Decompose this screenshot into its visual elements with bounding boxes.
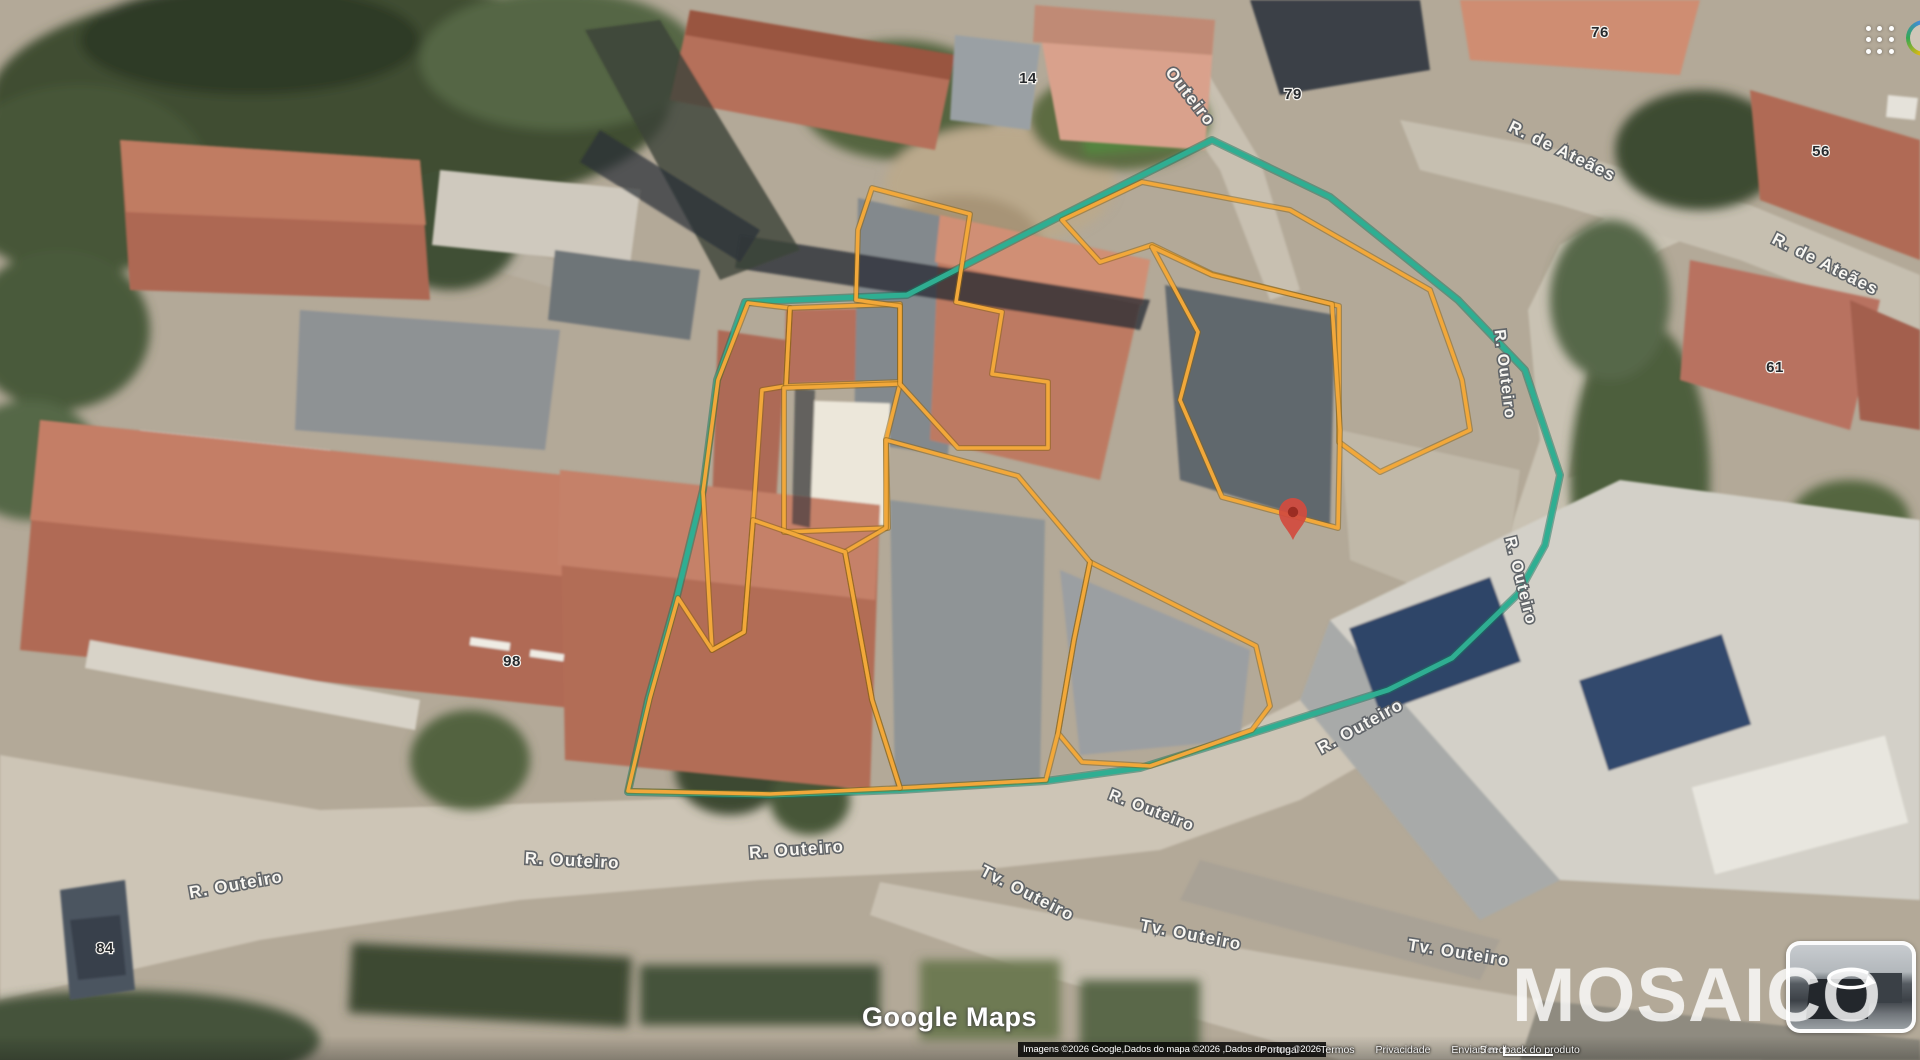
attribution-link-privacidade[interactable]: Privacidade — [1376, 1044, 1431, 1056]
parcel-outline-7 — [1058, 562, 1270, 766]
house-number: 98 — [503, 653, 521, 670]
parcel-outline-3-halo — [784, 384, 900, 532]
house-number: 56 — [1812, 143, 1830, 160]
map-pin-dot — [1288, 507, 1298, 517]
parcel-outline-9 — [628, 520, 900, 794]
street-label: R. Outeiro — [1314, 695, 1406, 758]
mosaico-watermark: MOSAICO — [1512, 958, 1882, 1034]
street-label: Tv. Outeiro — [1139, 915, 1244, 953]
street-label: R. Outeiro — [1491, 329, 1519, 421]
map-canvas[interactable]: OuteiroR. de AteãesR. de AteãesR. Outeir… — [0, 0, 1920, 1060]
parcel-outline-6 — [1152, 247, 1340, 528]
parcel-outline-3 — [784, 384, 900, 532]
house-number: 76 — [1591, 24, 1609, 41]
map-pin[interactable] — [1279, 498, 1307, 540]
scale-bar — [1503, 1047, 1553, 1056]
parcel-outline-2-halo — [786, 304, 900, 386]
parcel-outline-5-halo — [1062, 182, 1470, 472]
property-boundary — [628, 140, 1560, 795]
street-label: R. Outeiro — [524, 849, 620, 873]
street-label: R. de Ateães — [1769, 229, 1882, 299]
street-label: Tv. Outeiro — [1407, 935, 1511, 970]
house-number: 84 — [96, 940, 114, 957]
scale-label: 5 m — [1480, 1044, 1498, 1056]
map-overlay-layer: OuteiroR. de AteãesR. de AteãesR. Outeir… — [0, 0, 1920, 1060]
parcel-outline-4 — [856, 188, 1048, 448]
google-apps-grid-icon[interactable] — [1864, 24, 1898, 58]
property-boundary-halo — [628, 140, 1560, 795]
google-maps-logo: Google Maps — [862, 1002, 1037, 1033]
street-label: R. Outeiro — [188, 867, 285, 902]
street-label: R. Outeiro — [1106, 787, 1196, 835]
house-number: 14 — [1019, 70, 1037, 87]
house-number: 79 — [1284, 86, 1302, 103]
attribution-link-termos[interactable]: Termos — [1320, 1044, 1354, 1056]
parcel-outline-4-halo — [856, 188, 1048, 448]
scale-control: 5 m — [1480, 1044, 1553, 1056]
attribution-link-portugal: Portugal — [1260, 1044, 1299, 1056]
parcel-outline-6-halo — [1152, 247, 1340, 528]
parcel-outline-9-halo — [628, 520, 900, 794]
map-pin-body — [1279, 498, 1307, 540]
parcel-outline-5 — [1062, 182, 1470, 472]
street-label: R. Outeiro — [748, 837, 844, 863]
parcel-outline-2 — [786, 304, 900, 386]
house-number: 61 — [1766, 359, 1784, 376]
street-label: Outeiro — [1161, 63, 1219, 130]
street-label: R. Outeiro — [1501, 535, 1539, 627]
attribution-bar: Imagens ©2026 Google,Dados do mapa ©2026… — [0, 1036, 1920, 1060]
street-label: Tv. Outeiro — [977, 861, 1077, 925]
street-label: R. de Ateães — [1506, 117, 1620, 185]
